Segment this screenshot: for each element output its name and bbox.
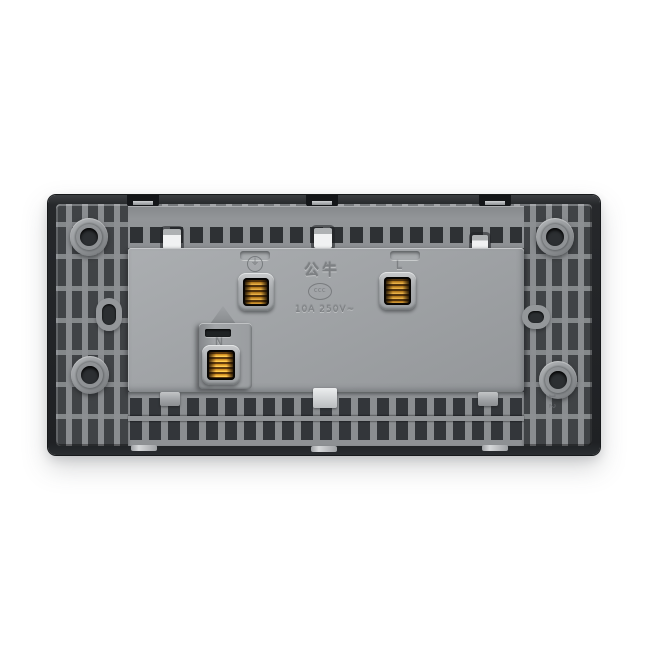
lattice-crossbar [128,416,524,421]
mounting-plate: ⏚ L 公牛 CCC 10A 250V~ N [128,248,524,392]
ccc-certification-mark: CCC [308,283,332,300]
terminal-opening [243,278,269,306]
boss-hole [546,228,564,246]
terminal-opening [384,277,411,305]
live-terminal [379,272,416,310]
brass-screw [386,279,409,303]
frame-clip-bottom-center [311,446,337,452]
boss-hole [80,228,98,246]
mounting-boss-bottom-right [539,361,577,399]
mounting-boss-top-right [536,218,574,256]
plate-tab-bottom-left [160,392,180,406]
neutral-terminal-block: N [199,323,252,389]
retaining-clip-center [314,228,332,248]
mounting-boss-top-left [70,218,108,256]
brand-embossed: 公牛 [292,259,352,280]
notch-bar [133,201,153,205]
plate-tab-bottom-center [313,388,337,408]
brass-screw [209,352,233,378]
terminal-opening [207,350,235,380]
retaining-clip-left [163,229,181,249]
notch-bar [485,201,505,205]
socket-back-panel: ⏚ L 公牛 CCC 10A 250V~ N [48,195,600,455]
live-terminal-label: L [391,259,407,272]
notch-bar [312,201,332,205]
mold-mark: 1-2 [548,394,557,418]
release-lever-icon [210,306,236,324]
earth-terminal [238,273,274,311]
frame-clip-bottom-right [482,445,508,451]
boss-hole [81,366,99,384]
earth-symbol-icon: ⏚ [247,256,263,272]
frame-clip-bottom-left [131,445,157,451]
rating-embossed: 10A 250V~ [290,305,360,315]
mounting-boss-bottom-left [71,356,109,394]
plate-tab-bottom-right [478,392,498,406]
boss-hole [549,371,567,389]
neutral-terminal [202,345,240,385]
brass-screw [245,280,267,304]
oval-hole-right [522,305,550,329]
oval-hole-left [96,298,122,331]
